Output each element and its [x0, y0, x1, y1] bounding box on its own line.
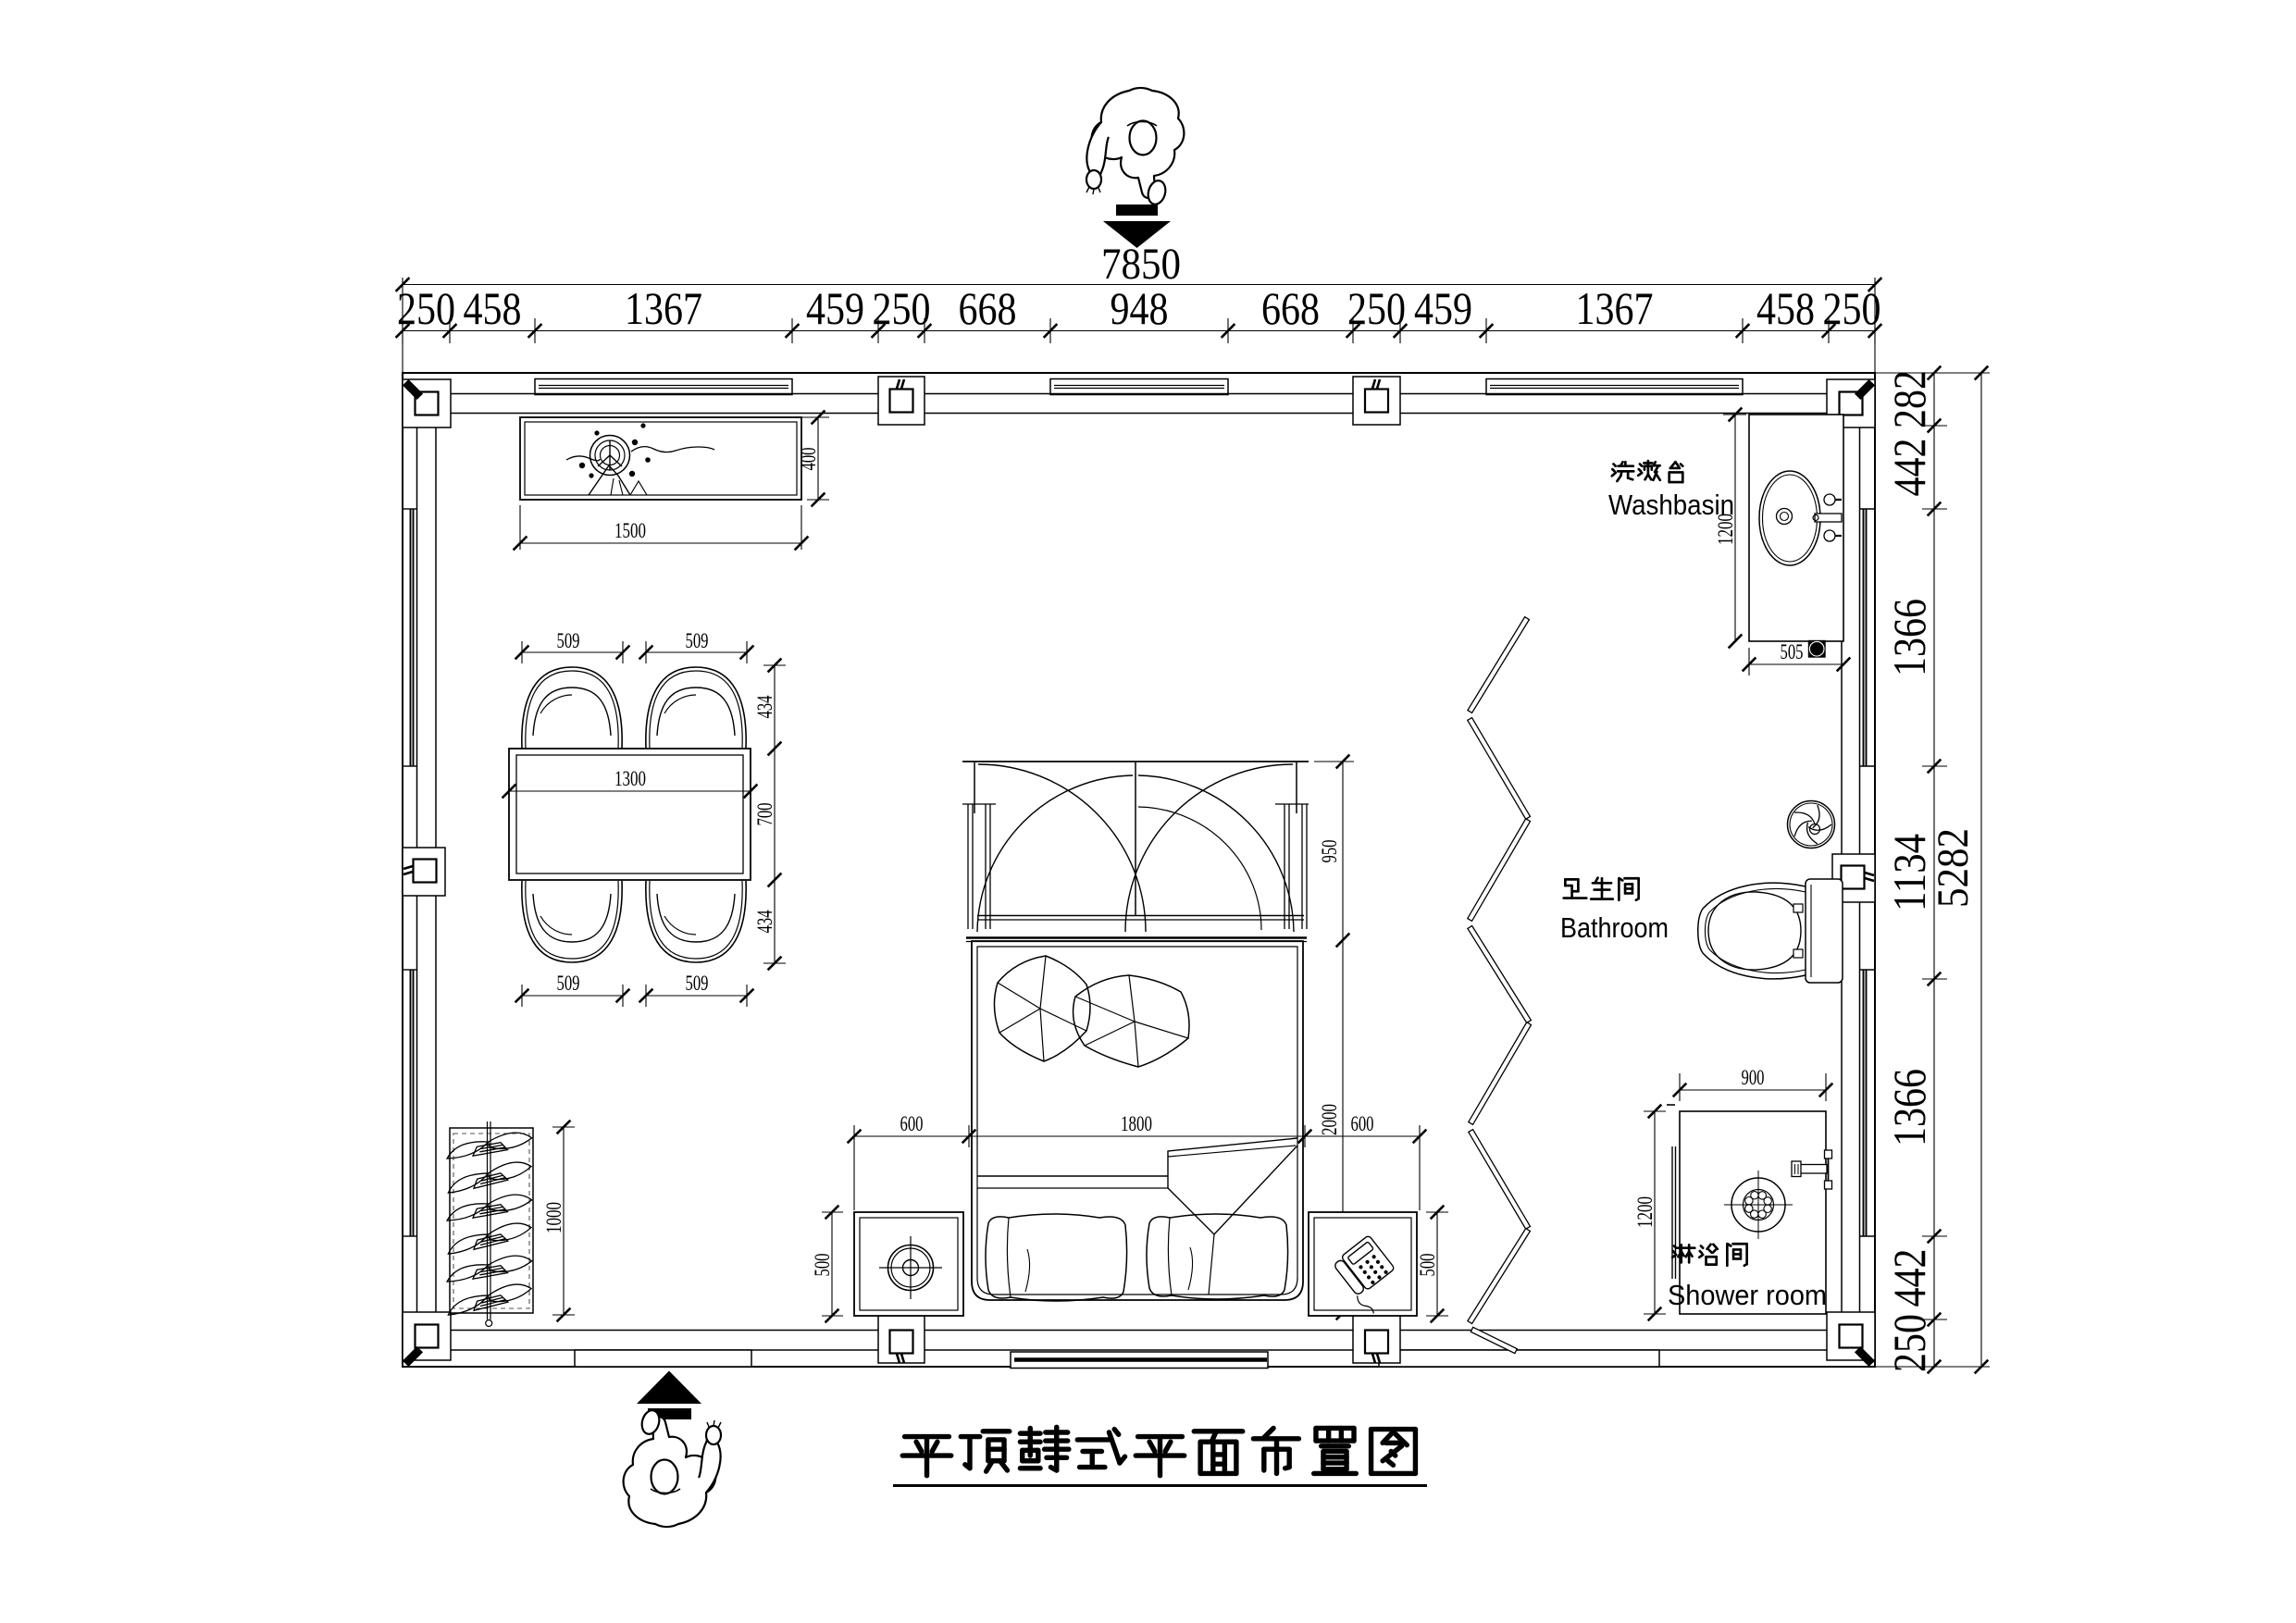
svg-text:600: 600: [1351, 1112, 1374, 1135]
svg-text:Shower room: Shower room: [1668, 1279, 1827, 1311]
svg-text:250: 250: [397, 282, 455, 334]
svg-text:1300: 1300: [614, 767, 646, 790]
svg-text:600: 600: [900, 1112, 924, 1135]
svg-text:1500: 1500: [614, 519, 646, 542]
svg-text:Bathroom: Bathroom: [1560, 911, 1669, 944]
svg-text:442: 442: [1883, 439, 1935, 497]
svg-text:500: 500: [811, 1254, 834, 1277]
svg-text:1367: 1367: [625, 282, 702, 334]
svg-text:509: 509: [686, 972, 709, 995]
svg-text:Washbasin: Washbasin: [1608, 489, 1734, 521]
svg-text:250: 250: [873, 282, 931, 334]
svg-text:442: 442: [1883, 1249, 1935, 1307]
svg-text:950: 950: [1318, 840, 1341, 863]
svg-text:668: 668: [1261, 282, 1320, 334]
svg-text:2000: 2000: [1318, 1104, 1341, 1135]
svg-text:250: 250: [1823, 282, 1881, 334]
svg-text:509: 509: [686, 629, 709, 652]
svg-text:668: 668: [959, 282, 1017, 334]
svg-text:250: 250: [1883, 1314, 1935, 1372]
svg-text:1134: 1134: [1883, 834, 1935, 911]
svg-text:948: 948: [1111, 282, 1169, 334]
svg-text:434: 434: [753, 695, 776, 718]
svg-text:700: 700: [753, 803, 776, 826]
svg-text:458: 458: [464, 282, 522, 334]
svg-text:5282: 5282: [1929, 828, 1978, 908]
svg-text:1200: 1200: [1633, 1196, 1657, 1228]
svg-text:459: 459: [806, 282, 864, 334]
svg-text:900: 900: [1742, 1066, 1765, 1089]
svg-text:1800: 1800: [1121, 1112, 1152, 1135]
svg-text:509: 509: [557, 972, 580, 995]
svg-text:1366: 1366: [1883, 1069, 1935, 1146]
svg-text:1366: 1366: [1883, 599, 1935, 676]
svg-text:400: 400: [797, 448, 820, 471]
svg-text:459: 459: [1414, 282, 1472, 334]
svg-text:250: 250: [1347, 282, 1406, 334]
svg-text:1000: 1000: [542, 1202, 565, 1233]
svg-text:458: 458: [1756, 282, 1815, 334]
svg-text:509: 509: [557, 629, 580, 652]
svg-text:505: 505: [1781, 640, 1804, 663]
svg-text:1367: 1367: [1576, 282, 1654, 334]
svg-text:500: 500: [1416, 1254, 1439, 1277]
svg-text:282: 282: [1883, 370, 1935, 428]
svg-text:434: 434: [753, 910, 776, 933]
